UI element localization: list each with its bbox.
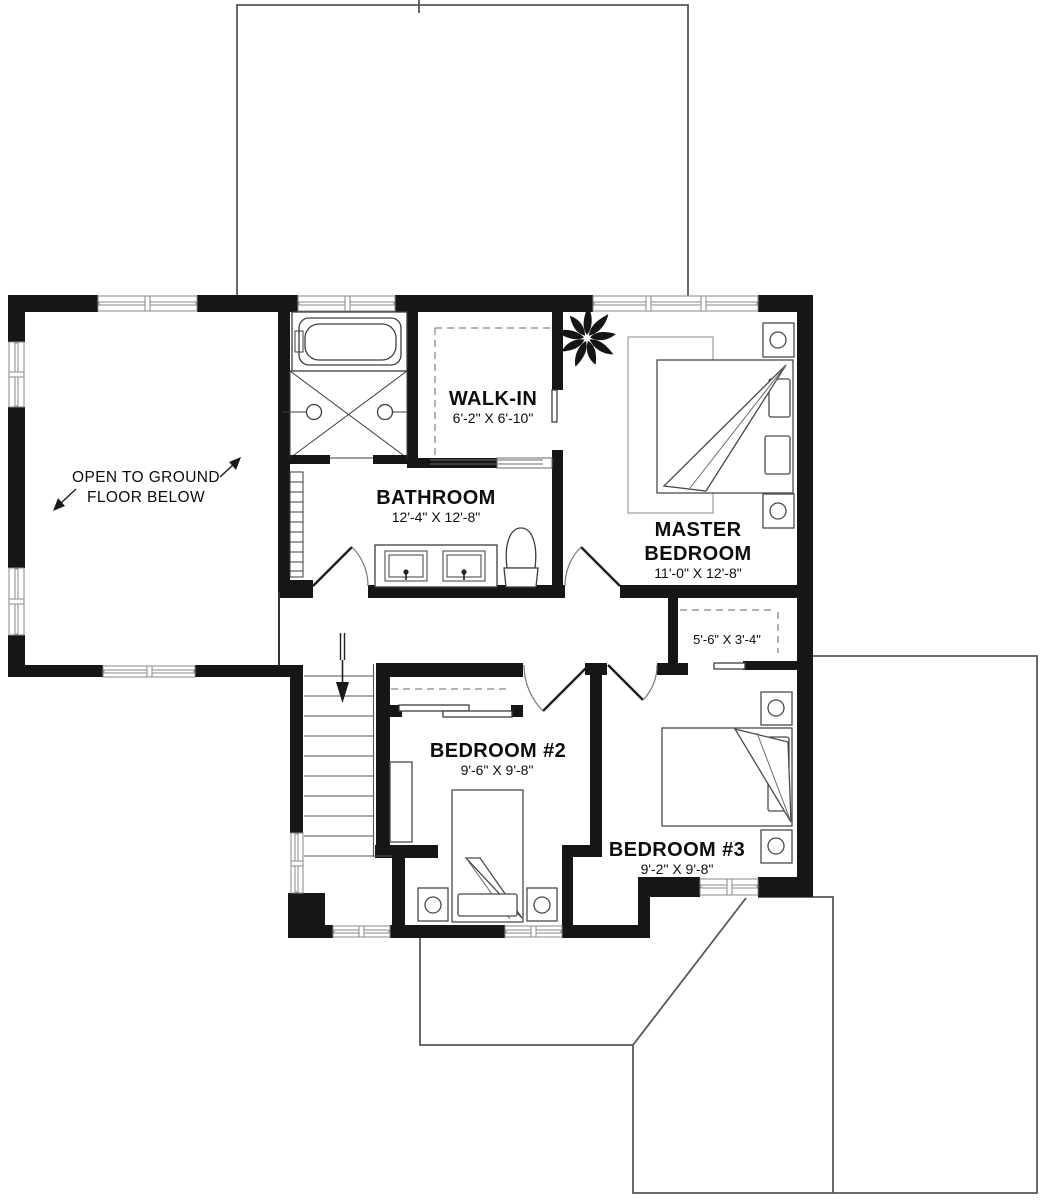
sliding-door-panel: [399, 705, 469, 711]
master-bedroom-dims: 11'-0" X 12'-8": [654, 565, 741, 581]
window: [333, 926, 390, 937]
bedroom3-dims: 9'-2" X 9'-8": [641, 861, 714, 877]
shower-head-icon: [378, 405, 393, 420]
lamp-icon: [534, 897, 550, 913]
window: [103, 666, 195, 677]
bathroom-dims: 12'-4" X 12'-8": [392, 509, 480, 525]
lamp-icon: [770, 332, 786, 348]
floor-plan-canvas: OPEN TO GROUND FLOOR BELOW WALK-IN 6'-2"…: [0, 0, 1042, 1200]
master-bedroom-label-line2: BEDROOM: [644, 543, 751, 565]
open-area-label-line2: FLOOR BELOW: [87, 489, 205, 506]
lamp-icon: [768, 838, 784, 854]
lamp-icon: [770, 503, 786, 519]
lamp-icon: [425, 897, 441, 913]
bedroom3-label: BEDROOM #3: [609, 839, 745, 861]
walk-in-label: WALK-IN: [449, 388, 537, 410]
window: [505, 926, 562, 937]
toilet: [504, 528, 538, 587]
floor-plan-page: OPEN TO GROUND FLOOR BELOW WALK-IN 6'-2"…: [0, 0, 1042, 1200]
window: [593, 296, 758, 311]
bathroom-label: BATHROOM: [376, 487, 495, 509]
shower-head-icon: [307, 405, 322, 420]
dresser: [390, 762, 412, 842]
lamp-icon: [768, 700, 784, 716]
master-closet-dims: 5'-6" X 3'-4": [693, 632, 761, 647]
bathtub: [292, 312, 407, 371]
vanity: [375, 545, 497, 587]
bypass-door-panel: [714, 663, 745, 669]
bedroom2-dims: 9'-6" X 9'-8": [461, 762, 534, 778]
window: [298, 296, 395, 311]
window: [291, 833, 303, 893]
pillow: [765, 436, 790, 474]
open-area-label-line1: OPEN TO GROUND: [72, 469, 220, 486]
sliding-door-panel: [443, 711, 512, 717]
window: [9, 342, 24, 407]
master-bedroom-label-line1: MASTER: [655, 519, 742, 541]
bedroom2-label: BEDROOM #2: [430, 740, 566, 762]
window: [700, 879, 758, 895]
walk-in-door-panel: [552, 390, 557, 422]
pillow: [458, 894, 517, 916]
canvas-background: [0, 0, 1042, 1200]
window: [9, 568, 24, 635]
window: [98, 296, 197, 311]
walk-in-dims: 6'-2" X 6'-10": [453, 410, 534, 426]
